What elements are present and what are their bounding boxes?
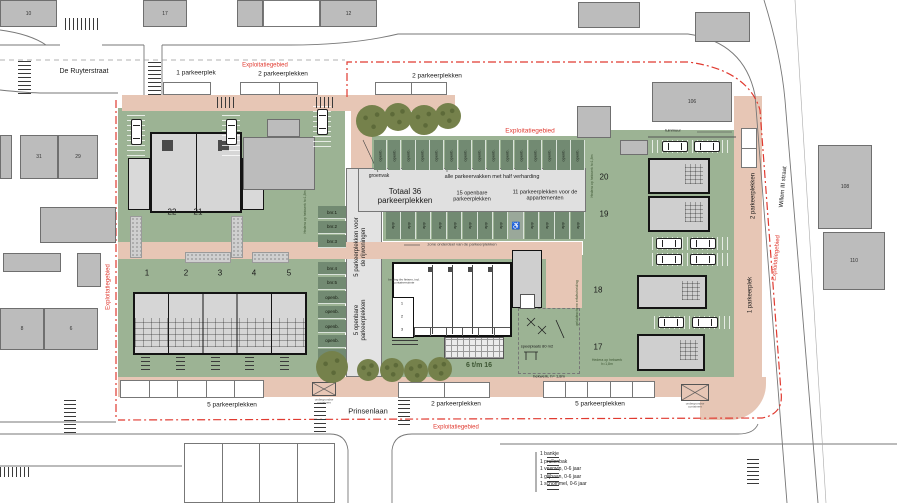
context-building: 10 (0, 0, 57, 27)
hatch-marking (65, 18, 100, 30)
boundary-label-bottom: Exploitatiegebied (433, 425, 479, 432)
bay-cell (298, 444, 335, 502)
tuinmuur-label: tuinmuur (665, 129, 681, 134)
bay-label: openb. (392, 149, 397, 161)
parking-bay-openbaar: openb. (459, 140, 472, 170)
street-de-ruyterstraat: De Ruyterstraat (59, 68, 108, 76)
street-prinsenlaan: Prinsenlaan (348, 408, 388, 417)
parking-bay-openbaar: openb. (487, 140, 500, 170)
apartment-fixture-1 (428, 267, 433, 272)
parking-label-top-2: 2 parkeerplekken (258, 70, 308, 77)
tree-icon (428, 357, 452, 381)
parked-car-icon (656, 254, 682, 265)
containers-label-right: ondergrondse containers (681, 403, 709, 410)
house-number-18: 18 (594, 285, 603, 294)
bay-label: openb. (476, 149, 481, 161)
parking-bay-outline-group (375, 82, 447, 95)
legend-item: 1 glijbaan, 0-6 jaar (540, 475, 581, 480)
bay-label: openb. (406, 149, 411, 161)
context-building (3, 253, 61, 272)
parking-bay-app: app (478, 212, 493, 239)
house-number-21: 21 (194, 207, 203, 216)
parking-bay-app: app (555, 212, 570, 239)
bay-label: openb. (325, 309, 339, 314)
hedera-label-left: Hedera op hekwerk h=1,8m (303, 190, 307, 233)
bay-label: app (483, 222, 488, 229)
house-number-20: 20 (600, 172, 609, 181)
boundary-label-left: Exploitatiegebied (106, 264, 113, 310)
parking-bay-outline-group (263, 0, 320, 27)
context-building (243, 137, 315, 190)
bay-cell (544, 382, 566, 397)
bay-label: openb. (434, 149, 439, 161)
parked-car-icon (690, 254, 716, 265)
hatch-marking (176, 357, 185, 370)
bay-cell (178, 381, 207, 397)
bay-label: openb. (547, 149, 552, 161)
bay-label: openb. (448, 149, 453, 161)
parked-car-icon (662, 141, 688, 152)
parking-label-top-1: 1 parkeerplek (176, 69, 215, 76)
apartment-wall-2 (452, 265, 453, 334)
parking-bay-app: app (417, 212, 432, 239)
apartment-wall-4 (492, 265, 493, 334)
house-number-3: 3 (218, 268, 222, 277)
hatch-marking (0, 467, 30, 477)
context-building (620, 140, 648, 155)
boundary-label-mid: Exploitatiegebied (505, 127, 555, 134)
apartment-terrace (444, 337, 504, 359)
apartments-range-label: 6 t/m 16 (466, 362, 492, 370)
storage-room-3: 3 (401, 328, 403, 333)
house-number-4: 4 (252, 268, 256, 277)
bay-label: app (406, 222, 411, 229)
context-building (77, 253, 101, 287)
parking-bay-app: app (432, 212, 447, 239)
hatch-marking (148, 62, 161, 95)
hedera-label-right: Hedera op hekwerk h=1,8m (590, 154, 594, 197)
groenvak-label: groenvak (369, 174, 390, 180)
bay-label: app (575, 222, 580, 229)
bay-label: bnr.1 (327, 210, 337, 215)
house-18-block (637, 275, 707, 309)
hatch-marking (747, 456, 759, 484)
parking-bay-openbaar: openb. (445, 140, 458, 170)
parking-bay-openbaar: openb. (501, 140, 514, 170)
bay-label: openb. (325, 338, 339, 343)
bay-label: app (544, 222, 549, 229)
parking-label-top-3: 2 parkeerplekken (412, 72, 462, 79)
gravel-pad-b (252, 252, 289, 263)
bay-label: openb. (575, 149, 580, 161)
hatch-marking (314, 400, 326, 432)
bay-label: openb. (325, 324, 339, 329)
house-number-1: 1 (145, 268, 149, 277)
tree-icon (380, 358, 404, 382)
parking-bay-bnr: bnr.4 (318, 262, 346, 275)
wheelchair-icon: ♿ (512, 222, 521, 230)
parking-bay-app: app (525, 212, 540, 239)
hatch-marking (316, 97, 336, 108)
bay-cell (164, 83, 210, 94)
legend-item: 1 veerwip, 0-6 jaar (540, 467, 581, 472)
tree-icon (356, 105, 388, 137)
hatch-marking (211, 357, 220, 370)
parking-bay-bnr: bnr.3 (318, 235, 346, 248)
bay-label: app (529, 222, 534, 229)
bay-label: openb. (505, 149, 510, 161)
parked-car-icon (317, 109, 328, 135)
bay-label: bnr.4 (327, 266, 337, 271)
bay-label: openb. (325, 295, 339, 300)
playground-icons (524, 318, 564, 360)
parked-car-icon (656, 238, 682, 249)
context-building: 8 (0, 308, 44, 350)
bay-label: bnr.2 (327, 224, 337, 229)
apartment-wall-1 (432, 265, 433, 334)
legend-item: 1 schommel, 0-6 jaar (540, 482, 587, 487)
parking-bay-bnr: openb. (318, 320, 346, 333)
hatch-marking (141, 357, 150, 370)
context-building: 110 (823, 232, 885, 290)
parking-bay-bnr: bnr.2 (318, 221, 346, 234)
house-19-block (648, 196, 710, 232)
bay-cell (633, 382, 654, 397)
parking-bay-outline-group (398, 382, 490, 398)
parking-label-right-1: 1 parkeerplek (748, 277, 755, 313)
apartment-fixture-2 (448, 267, 453, 272)
parking-label-bottom-2: 2 parkeerplekken (431, 400, 481, 407)
bay-label: openb. (462, 149, 467, 161)
apartment-wall-3 (472, 265, 473, 334)
apartment-fixture-4 (488, 267, 493, 272)
parking-bay-openbaar: openb. (473, 140, 486, 170)
containers-box-left (312, 382, 336, 396)
bay-label: app (498, 222, 503, 229)
hatch-marking (398, 395, 410, 425)
apartment-balcony-strip (414, 327, 510, 336)
bay-label: bnr.3 (327, 239, 337, 244)
tree-icon (435, 103, 461, 129)
parked-car-icon (690, 238, 716, 249)
parked-car-icon (658, 317, 684, 328)
parking-bay-openbaar: openb. (529, 140, 542, 170)
zone-label: zone onderdeel van de parkeerplekken (427, 243, 496, 248)
parking-bay-outline-group (741, 128, 757, 168)
row-houses-fixtures (135, 318, 305, 347)
parked-car-icon (131, 119, 142, 145)
apartment-lift (520, 294, 535, 309)
hatch-marking (64, 400, 76, 433)
parking-bay-app: app (571, 212, 586, 239)
context-building: 6 (44, 308, 98, 350)
context-building (0, 135, 12, 179)
house-22-wing (128, 158, 150, 210)
bay-cell (588, 382, 610, 397)
apartment-fixture-3 (468, 267, 473, 272)
bay-cell (185, 444, 223, 502)
parking-bay-app: app (494, 212, 509, 239)
berging-label: berging tbv fietsen, incl. containerruim… (388, 279, 420, 286)
bay-label: openb. (519, 149, 524, 161)
bay-label: openb. (378, 149, 383, 161)
hatch-marking (280, 357, 289, 370)
tree-icon (404, 359, 428, 383)
bay-cell (121, 381, 150, 397)
house-number-2: 2 (184, 268, 188, 277)
openbare-label: 15 openbare parkeerplekken (448, 191, 496, 204)
bay-cell (376, 83, 412, 94)
bay-cell (566, 382, 588, 397)
legend-item: 1 prullenbak (540, 460, 567, 465)
house-17-block (637, 334, 705, 371)
house-number-19: 19 (600, 209, 609, 218)
site-plan-canvas: 1 2 3 De Ruyterstraat Prinsenlaan Willem… (0, 0, 897, 503)
bay-cell (150, 381, 179, 397)
speelplaats-label: speelplaats 80 m2 (517, 345, 557, 350)
parking-bay-app: app (540, 212, 555, 239)
tree-icon (316, 351, 348, 383)
context-building: 108 (818, 145, 872, 229)
parking-bay-openbaar: openb. (571, 140, 584, 170)
parking-bay-openbaar: openb. (402, 140, 415, 170)
bay-cell (742, 129, 756, 149)
bay-cell (260, 444, 298, 502)
parked-car-icon (694, 141, 720, 152)
bay-label: app (452, 222, 457, 229)
context-building: 12 (320, 0, 377, 27)
bay-cell (264, 1, 319, 26)
house-20-block (648, 158, 710, 194)
half-verharding-label: alle parkeervakken met half verharding (445, 174, 540, 180)
parking-bay-app: app (463, 212, 478, 239)
context-building (237, 0, 263, 27)
parked-car-icon (226, 119, 237, 145)
parking-bay-bnr: openb. (318, 335, 346, 348)
containers-box-right (681, 384, 709, 401)
storage-room-2: 2 (401, 315, 403, 320)
house-number-22: 22 (168, 207, 177, 216)
totaal-label: Totaal 36 parkeerplekken (373, 187, 437, 205)
context-building: 31 (20, 135, 58, 179)
bay-label: openb. (533, 149, 538, 161)
hatch-marking (18, 58, 31, 94)
gravel-path-right (231, 216, 243, 258)
parking-bay-wheelchair: ♿ (509, 212, 524, 239)
bay-label: openb. (490, 149, 495, 161)
bay-label: app (560, 222, 565, 229)
parking-label-right-2: 2 parkeerplekken (751, 173, 758, 219)
storage-room-1: 1 (401, 302, 403, 307)
context-building (578, 2, 640, 28)
tree-icon (384, 103, 412, 131)
bay-label: openb. (561, 149, 566, 161)
context-building (267, 119, 300, 137)
parking-bay-openbaar: openb. (515, 140, 528, 170)
strip-label-rijwoningen: 5 parkeerplekken voor de rijwoningen (354, 215, 368, 279)
bay-cell (235, 381, 263, 397)
parking-bay-openbaar: openb. (416, 140, 429, 170)
apartment-entry-hatch (392, 339, 418, 345)
parking-bay-outline-group (240, 82, 318, 95)
parking-bay-app: app (401, 212, 416, 239)
hedera-label-bottom: Hedera op hekwerk h=1,8m (587, 358, 627, 366)
parking-bay-openbaar: openb. (374, 140, 387, 170)
bay-cell (280, 83, 318, 94)
legend-item: 1 bankje (540, 452, 559, 457)
bay-cell (412, 83, 447, 94)
hekwerk-label: hekwerk, h= 1,8m (533, 375, 565, 380)
bay-cell (207, 381, 236, 397)
context-building: 106 (652, 82, 732, 122)
bay-label: app (390, 222, 395, 229)
parking-bay-openbaar: openb. (430, 140, 443, 170)
tree-icon (409, 105, 439, 135)
context-building (695, 12, 750, 42)
context-building: 17 (143, 0, 187, 27)
parking-bay-outline-group (184, 443, 335, 503)
strip-label-openbaar: 5 openbare parkeerplekken (354, 294, 368, 346)
hatch-marking (217, 97, 237, 108)
boundary-label-top: Exploitatiegebied (242, 63, 288, 70)
parked-car-icon (692, 317, 718, 328)
parking-bay-openbaar: openb. (557, 140, 570, 170)
parking-bay-bnr: bnr.1 (318, 206, 346, 219)
bay-label: app (421, 222, 426, 229)
tree-icon (357, 359, 379, 381)
bay-label: app (436, 222, 441, 229)
house-number-17: 17 (594, 342, 603, 351)
house-22-fixture (162, 140, 173, 151)
gravel-path-left (130, 216, 142, 258)
hatch-marking (245, 357, 254, 370)
bay-cell (611, 382, 633, 397)
geluidsscherm-label: geluidsscherm erfafscheiding (575, 280, 579, 325)
context-building (40, 207, 116, 243)
appartementen-label: 11 parkeerplekken voor de appartementen (504, 190, 586, 203)
context-building (577, 106, 611, 138)
house-number-5: 5 (287, 268, 291, 277)
gravel-pad-a (185, 252, 231, 263)
context-building: 29 (58, 135, 98, 179)
parking-bay-bnr: openb. (318, 306, 346, 319)
parking-bay-outline-group (543, 381, 655, 398)
parking-bay-openbaar: openb. (388, 140, 401, 170)
parking-label-bottom-1: 5 parkeerplekken (207, 401, 257, 408)
parking-bay-app: app (386, 212, 401, 239)
bay-cell (399, 383, 445, 397)
bay-cell (223, 444, 261, 502)
parking-bay-openbaar: openb. (543, 140, 556, 170)
parking-bay-outline-group (163, 82, 211, 95)
bay-label: bnr.5 (327, 280, 337, 285)
parking-bay-outline-group (120, 380, 264, 398)
bay-label: app (467, 222, 472, 229)
bay-cell (241, 83, 280, 94)
parking-bay-app: app (448, 212, 463, 239)
bay-cell (445, 383, 490, 397)
bay-cell (742, 149, 756, 168)
bay-label: openb. (420, 149, 425, 161)
parking-label-bottom-3: 5 parkeerplekken (575, 400, 625, 407)
parking-bay-bnr: bnr.5 (318, 277, 346, 290)
parking-bay-bnr: openb. (318, 291, 346, 304)
